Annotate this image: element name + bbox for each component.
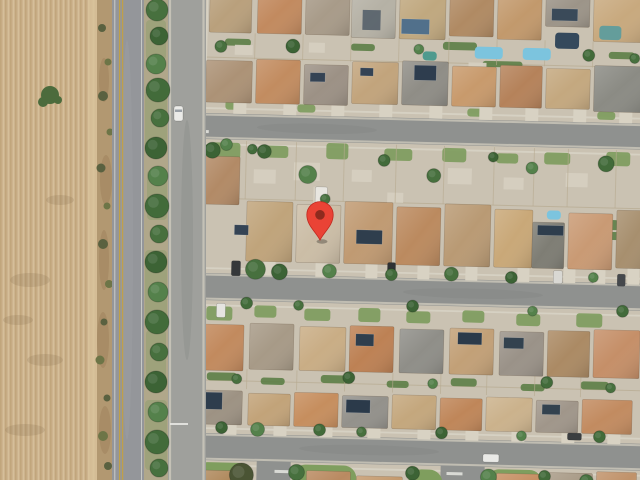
roof-shading: [396, 207, 441, 266]
tree-highlight: [148, 374, 158, 384]
solar-panel: [414, 65, 436, 81]
car: [231, 261, 240, 276]
lawn: [516, 314, 540, 327]
hedge: [261, 377, 285, 385]
lawn: [406, 311, 430, 324]
stop-bar: [446, 472, 462, 475]
field-track-smudge: [46, 195, 74, 205]
roof-shading: [248, 393, 291, 426]
hedge: [581, 381, 609, 390]
swimming-pool: [555, 33, 579, 50]
field-track-smudge: [10, 273, 50, 287]
tree-highlight: [148, 254, 158, 264]
field-bush: [54, 96, 62, 104]
lot-fence-line: [303, 34, 304, 60]
shoulder-bush: [105, 280, 113, 288]
tree-highlight: [151, 285, 160, 294]
field-track-smudge: [3, 315, 33, 325]
roof-shading: [306, 471, 351, 480]
roof-shading: [257, 0, 302, 34]
car: [567, 433, 581, 440]
swimming-pool: [423, 51, 437, 60]
roof-shading: [547, 330, 590, 377]
lawn: [326, 143, 348, 160]
patio: [254, 169, 276, 184]
tree-highlight: [148, 313, 159, 324]
tree-highlight: [152, 461, 160, 469]
swimming-pool: [547, 210, 561, 219]
plowed-field: [0, 0, 97, 480]
swimming-pool: [523, 48, 551, 61]
tree-highlight: [149, 57, 158, 66]
shoulder-bush: [98, 24, 106, 32]
solar-panel: [310, 73, 325, 82]
solar-panel: [346, 400, 370, 414]
lawn: [576, 313, 602, 328]
roof-shading: [593, 330, 640, 379]
lawn: [297, 104, 315, 112]
lot-fence-line: [399, 37, 400, 63]
roof-shading: [568, 213, 613, 270]
roof-shading: [399, 329, 444, 374]
tree-highlight: [153, 111, 161, 119]
shoulder-bush: [96, 356, 105, 365]
solar-panel: [401, 19, 429, 35]
patio: [235, 45, 253, 55]
lawn: [254, 305, 276, 318]
roof-shading: [596, 472, 637, 480]
solar-panel: [360, 68, 373, 76]
lawn: [358, 308, 380, 323]
patio: [309, 43, 325, 53]
lawn: [496, 153, 518, 164]
solar-panel: [356, 334, 374, 346]
shoulder-bush: [98, 91, 108, 101]
car: [483, 454, 499, 462]
street-branch: [256, 459, 291, 480]
hedge: [451, 378, 477, 387]
tree-highlight: [149, 81, 160, 92]
roof-shading: [494, 209, 533, 268]
tree-highlight: [148, 140, 158, 150]
roof-shading: [486, 397, 533, 432]
car: [553, 271, 562, 284]
solar-panel: [552, 8, 578, 21]
roof-shading: [616, 210, 640, 269]
roof-shading: [496, 473, 545, 480]
roof-shading: [593, 66, 640, 113]
dirt-blotch: [100, 155, 112, 205]
roof-shading: [440, 398, 483, 431]
pin-dot: [315, 210, 325, 220]
shoulder-bush: [98, 431, 108, 441]
lot-fence-line: [449, 38, 450, 64]
car-windshield: [175, 110, 182, 113]
solar-panel: [234, 225, 248, 235]
tree-highlight: [151, 169, 160, 178]
roof-shading: [299, 326, 346, 371]
solar-panel: [504, 337, 524, 348]
tree-highlight: [152, 227, 160, 235]
driveway: [379, 104, 392, 117]
field-bush: [38, 97, 48, 107]
lot-fence-line: [255, 33, 256, 59]
roof-shading: [352, 62, 399, 105]
roof-shading: [209, 0, 252, 33]
shoulder-bush: [105, 59, 112, 66]
patio: [352, 170, 372, 182]
hedge: [351, 44, 375, 52]
driveway: [525, 108, 538, 121]
patio: [448, 168, 472, 185]
shoulder-bush: [104, 395, 111, 402]
tree-highlight: [148, 197, 159, 208]
pin-shadow: [317, 239, 328, 243]
shoulder-bush: [104, 203, 111, 210]
car: [174, 106, 183, 121]
neighborhood: [186, 0, 640, 480]
roof-shading: [246, 201, 293, 262]
roof-shading: [497, 0, 542, 40]
roof-shading: [203, 156, 240, 205]
patio: [503, 177, 523, 189]
swimming-pool: [599, 26, 621, 41]
lawn: [544, 152, 570, 165]
roof-shading: [349, 326, 394, 373]
roof-shading: [206, 60, 253, 103]
roof-shading: [255, 59, 300, 104]
hedge: [443, 42, 477, 51]
lawn: [462, 310, 484, 323]
tree-highlight: [151, 405, 160, 414]
roof-shading: [499, 65, 542, 108]
satellite-map-view[interactable]: Aerial satellite map view of a suburban …: [0, 0, 640, 480]
dirt-blotch: [99, 406, 111, 454]
field-track-smudge: [5, 424, 45, 436]
tree-highlight: [152, 345, 160, 353]
swimming-pool: [475, 47, 503, 60]
car: [617, 274, 625, 286]
roof-shading: [392, 395, 437, 430]
driveway: [627, 268, 639, 284]
lawn: [442, 148, 466, 163]
roof-shading: [545, 68, 590, 109]
lawn: [597, 112, 615, 120]
solar-panel: [542, 404, 560, 414]
roof-shading: [249, 323, 294, 370]
roof-shading: [582, 399, 633, 434]
roof-shading: [444, 204, 492, 267]
solar-panel: [537, 225, 563, 236]
roof-shading: [294, 392, 339, 427]
shoulder-bush: [101, 319, 108, 326]
solar-panel: [356, 230, 382, 245]
lot-fence-line: [351, 36, 352, 62]
roof-shading: [451, 66, 496, 107]
field-track-smudge: [27, 354, 63, 366]
tree-highlight: [149, 2, 159, 12]
roof-shading: [305, 0, 350, 36]
roof-shading: [303, 64, 348, 105]
lawn: [304, 308, 330, 321]
car: [216, 303, 225, 317]
satellite-imagery: [0, 0, 640, 480]
shoulder-bush: [97, 164, 106, 173]
roof-shading: [449, 0, 494, 37]
shoulder-bush: [98, 239, 108, 249]
field-edge-strip: [88, 0, 97, 480]
patio: [566, 173, 588, 188]
driveway: [573, 109, 586, 122]
driveway: [429, 105, 442, 118]
solar-panel: [458, 332, 482, 345]
hedge: [387, 381, 409, 389]
driveway: [479, 107, 492, 120]
tree-highlight: [152, 29, 160, 37]
shoulder-bush: [104, 462, 112, 470]
asphalt-wear-patch: [181, 120, 193, 360]
tree-highlight: [148, 433, 159, 444]
roof-structure: [362, 10, 380, 30]
